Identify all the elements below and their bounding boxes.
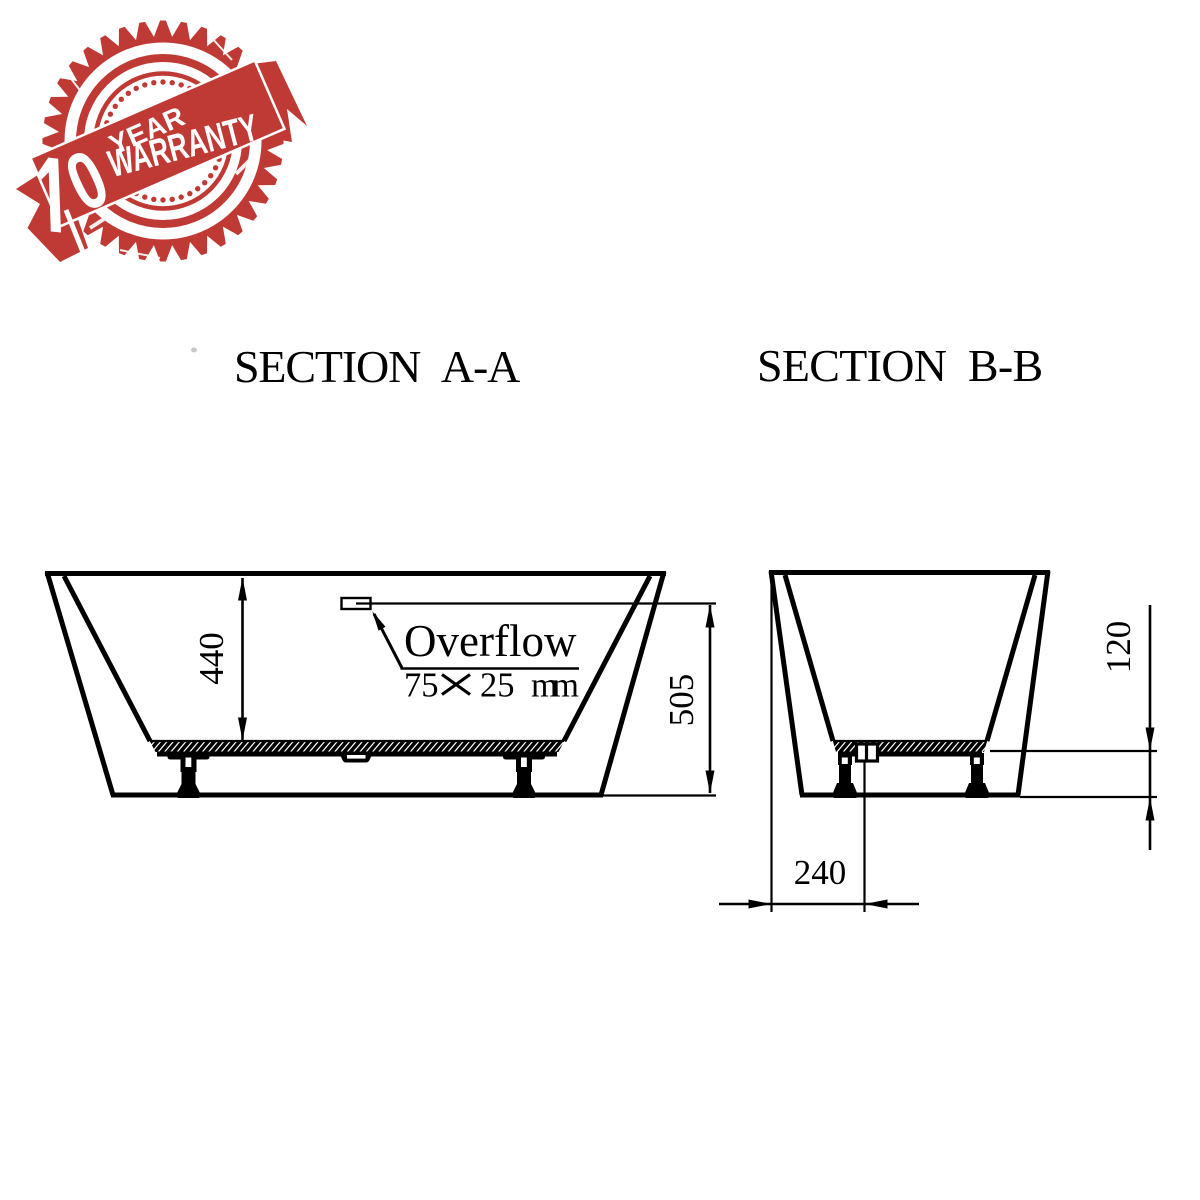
svg-text:SECTION B-B: SECTION B-B xyxy=(757,340,1043,391)
svg-text:SECTION A-A: SECTION A-A xyxy=(234,341,520,392)
svg-text:240: 240 xyxy=(794,853,847,892)
svg-text:Overflow: Overflow xyxy=(404,616,577,666)
svg-text:mm: mm xyxy=(531,667,579,705)
svg-text:440: 440 xyxy=(192,632,231,685)
svg-text:25: 25 xyxy=(480,667,515,705)
svg-text:75: 75 xyxy=(404,667,439,705)
svg-text:505: 505 xyxy=(662,674,701,727)
svg-text:120: 120 xyxy=(1099,621,1138,674)
